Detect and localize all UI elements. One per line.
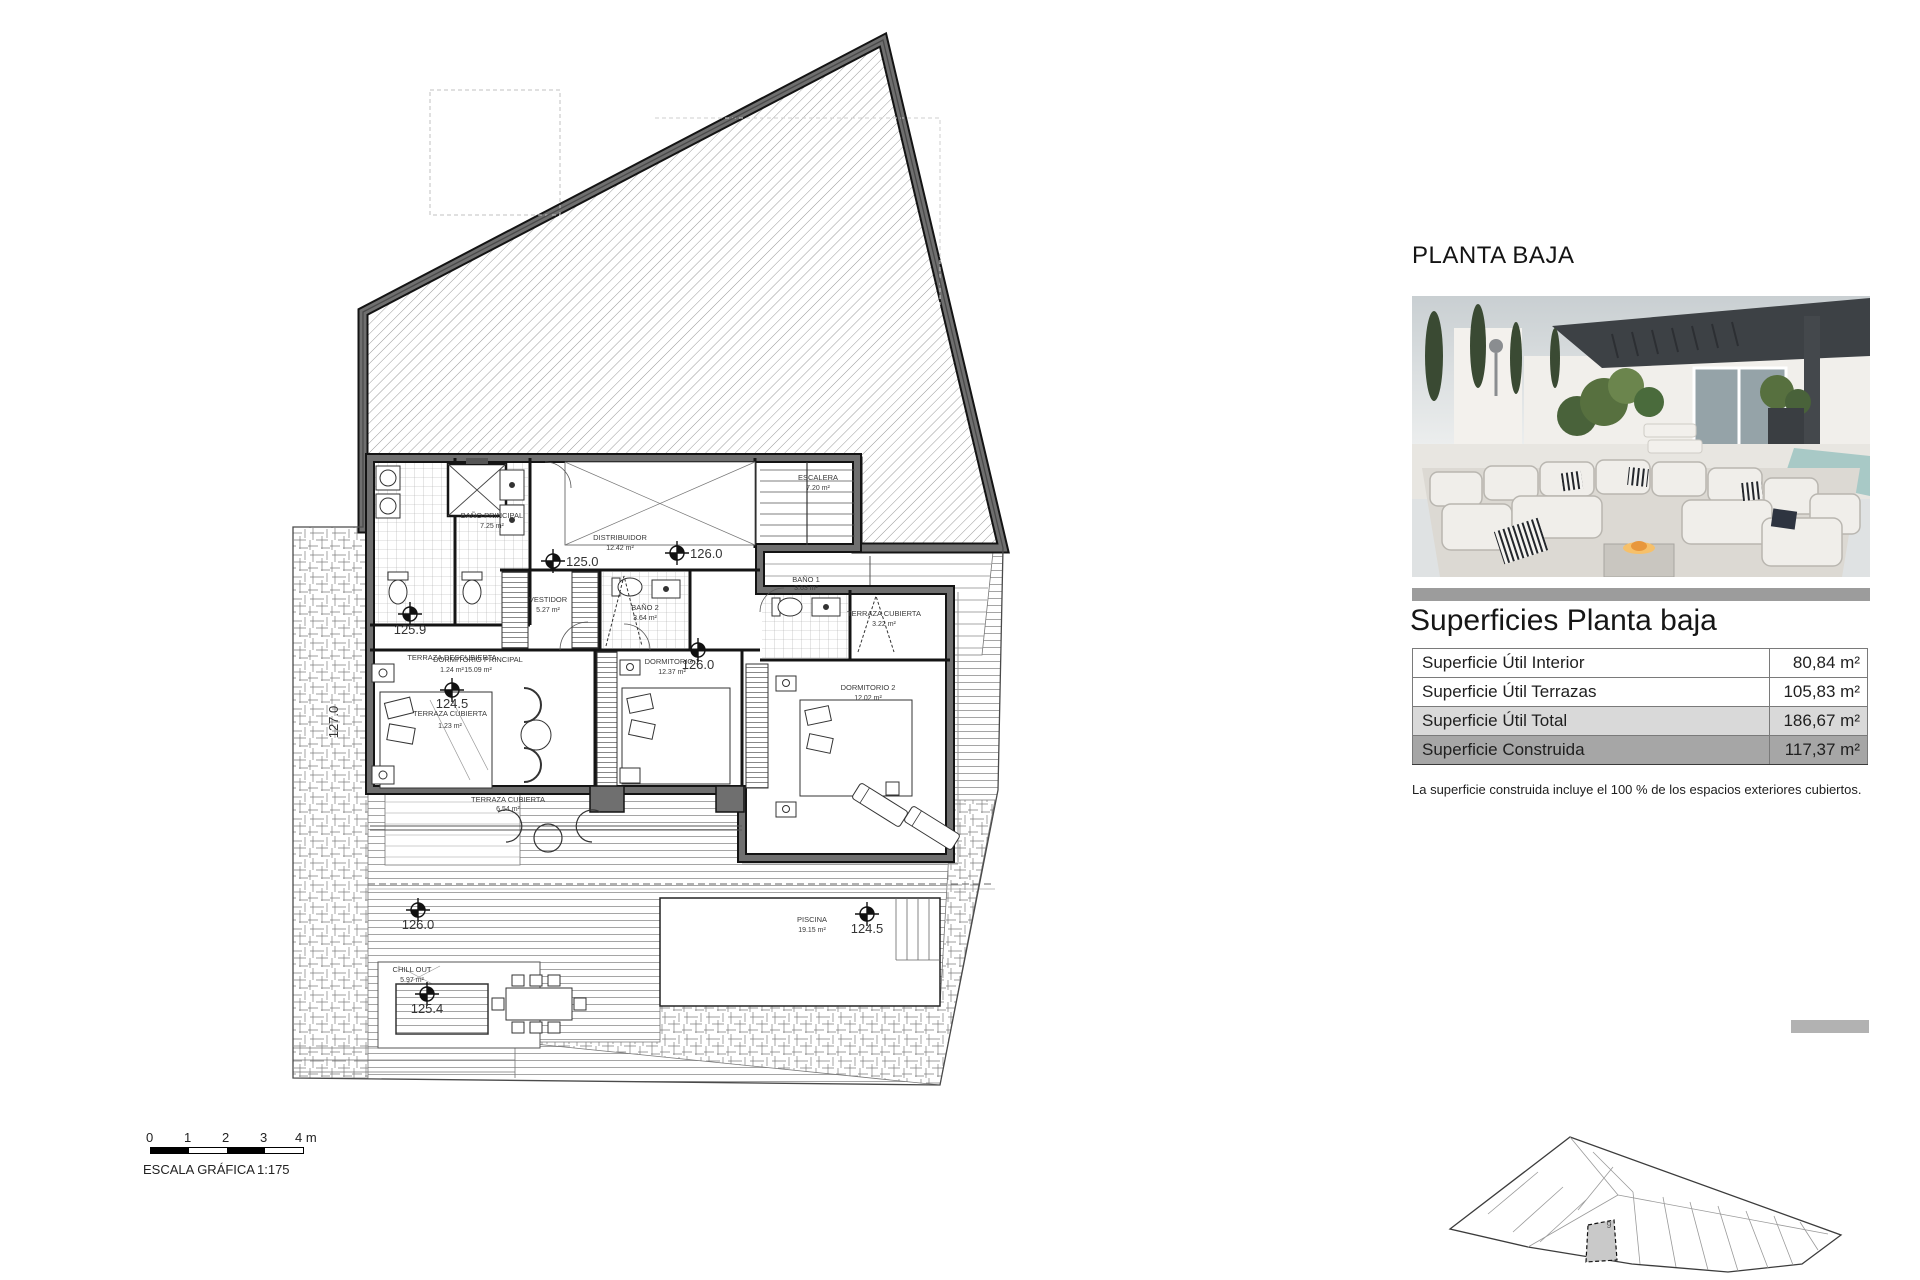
scale-caption: ESCALA GRÁFICA [143, 1162, 255, 1177]
scale-tick: 1 [184, 1130, 191, 1145]
svg-text:3.64 m²: 3.64 m² [633, 615, 657, 622]
surface-value: 80,84 m² [1770, 649, 1868, 678]
svg-text:124.5: 124.5 [851, 921, 884, 936]
svg-text:19.15 m²: 19.15 m² [798, 927, 826, 934]
floor-plan-drawing: BAÑO PRINCIPAL 7.25 m² DISTRIBUIDOR 12.4… [0, 0, 1100, 1280]
svg-text:DISTRIBUIDOR: DISTRIBUIDOR [593, 533, 647, 542]
surface-label: Superficie Útil Terrazas [1413, 678, 1770, 707]
svg-text:124.5: 124.5 [436, 696, 469, 711]
outdoor-shower [1489, 339, 1503, 353]
fire-pit [1604, 541, 1674, 577]
table-row: Superficie Útil Terrazas 105,83 m² [1413, 678, 1868, 707]
svg-text:5.27 m²: 5.27 m² [536, 607, 560, 614]
surface-value: 117,37 m² [1770, 736, 1868, 765]
svg-text:12.02 m²: 12.02 m² [854, 695, 882, 702]
floorplan-sheet: BAÑO PRINCIPAL 7.25 m² DISTRIBUIDOR 12.4… [0, 0, 1920, 1280]
svg-text:PISCINA: PISCINA [797, 915, 827, 924]
table-row-built: Superficie Construida 117,37 m² [1413, 736, 1868, 765]
page-title: PLANTA BAJA [1412, 242, 1574, 270]
svg-text:15.09 m²: 15.09 m² [464, 667, 492, 674]
svg-text:12.42 m²: 12.42 m² [606, 545, 634, 552]
svg-text:VESTIDOR: VESTIDOR [529, 595, 568, 604]
surface-label: Superficie Útil Total [1413, 707, 1770, 736]
table-row: Superficie Útil Interior 80,84 m² [1413, 649, 1868, 678]
paved-strip-left [293, 527, 368, 1078]
scale-tick: 0 [146, 1130, 153, 1145]
svg-text:126.0: 126.0 [402, 917, 435, 932]
svg-text:125.9: 125.9 [394, 622, 427, 637]
scale-tick-end: 4 m [295, 1130, 317, 1145]
svg-text:BAÑO 1: BAÑO 1 [792, 575, 820, 584]
svg-text:TERRAZA CUBIERTA: TERRAZA CUBIERTA [471, 795, 545, 804]
svg-text:CHILL OUT: CHILL OUT [393, 965, 432, 974]
svg-text:3.63 m²: 3.63 m² [794, 585, 818, 592]
svg-text:BAÑO 2: BAÑO 2 [631, 603, 659, 612]
svg-text:BAÑO PRINCIPAL: BAÑO PRINCIPAL [461, 511, 523, 520]
svg-text:127.0: 127.0 [326, 706, 341, 739]
page-marker-bar [1791, 1020, 1869, 1033]
surfaces-heading: Superficies Planta baja [1410, 604, 1717, 638]
svg-text:1.23 m²: 1.23 m² [438, 723, 462, 730]
scale-bar-graphic [150, 1147, 304, 1154]
svg-text:1.24 m²: 1.24 m² [440, 667, 464, 674]
svg-text:ESCALERA: ESCALERA [798, 473, 838, 482]
surface-label: Superficie Construida [1413, 736, 1770, 765]
svg-text:TERRAZA CUBIERTA: TERRAZA CUBIERTA [847, 609, 921, 618]
scale-ratio: 1:175 [257, 1162, 290, 1177]
surface-value: 186,67 m² [1770, 707, 1868, 736]
surface-label: Superficie Útil Interior [1413, 649, 1770, 678]
svg-text:DORMITORIO 2: DORMITORIO 2 [841, 683, 896, 692]
villa-photo [1412, 296, 1870, 577]
svg-text:126.0: 126.0 [682, 657, 715, 672]
elevator-shaft [448, 458, 506, 516]
highlighted-plot-number: 9 [1606, 1220, 1611, 1230]
site-outline [1450, 1137, 1841, 1272]
table-footnote: La superficie construida incluye el 100 … [1412, 782, 1882, 797]
scale-bar: 0 1 2 3 4 m ESCALA GRÁFICA 1:175 [135, 1128, 335, 1188]
photo-divider-bar [1412, 588, 1870, 601]
svg-text:3.22 m²: 3.22 m² [872, 621, 896, 628]
site-plan: 9 [1428, 1092, 1858, 1280]
svg-text:125.0: 125.0 [566, 554, 599, 569]
table-row-total: Superficie Útil Total 186,67 m² [1413, 707, 1868, 736]
scale-tick: 3 [260, 1130, 267, 1145]
scale-tick: 2 [222, 1130, 229, 1145]
svg-text:6.54 m²: 6.54 m² [496, 806, 520, 813]
villa-photo-render [1412, 296, 1870, 577]
highlighted-plot [1586, 1220, 1617, 1262]
surface-value: 105,83 m² [1770, 678, 1868, 707]
svg-text:7.25 m²: 7.25 m² [480, 523, 504, 530]
svg-text:7.20 m²: 7.20 m² [806, 485, 830, 492]
svg-text:5.97 m²: 5.97 m² [400, 977, 424, 984]
surfaces-table: Superficie Útil Interior 80,84 m² Superf… [1412, 648, 1868, 765]
svg-text:125.4: 125.4 [411, 1001, 444, 1016]
svg-text:TERRAZA DESCUBIERTA: TERRAZA DESCUBIERTA [407, 653, 496, 662]
svg-text:126.0: 126.0 [690, 546, 723, 561]
